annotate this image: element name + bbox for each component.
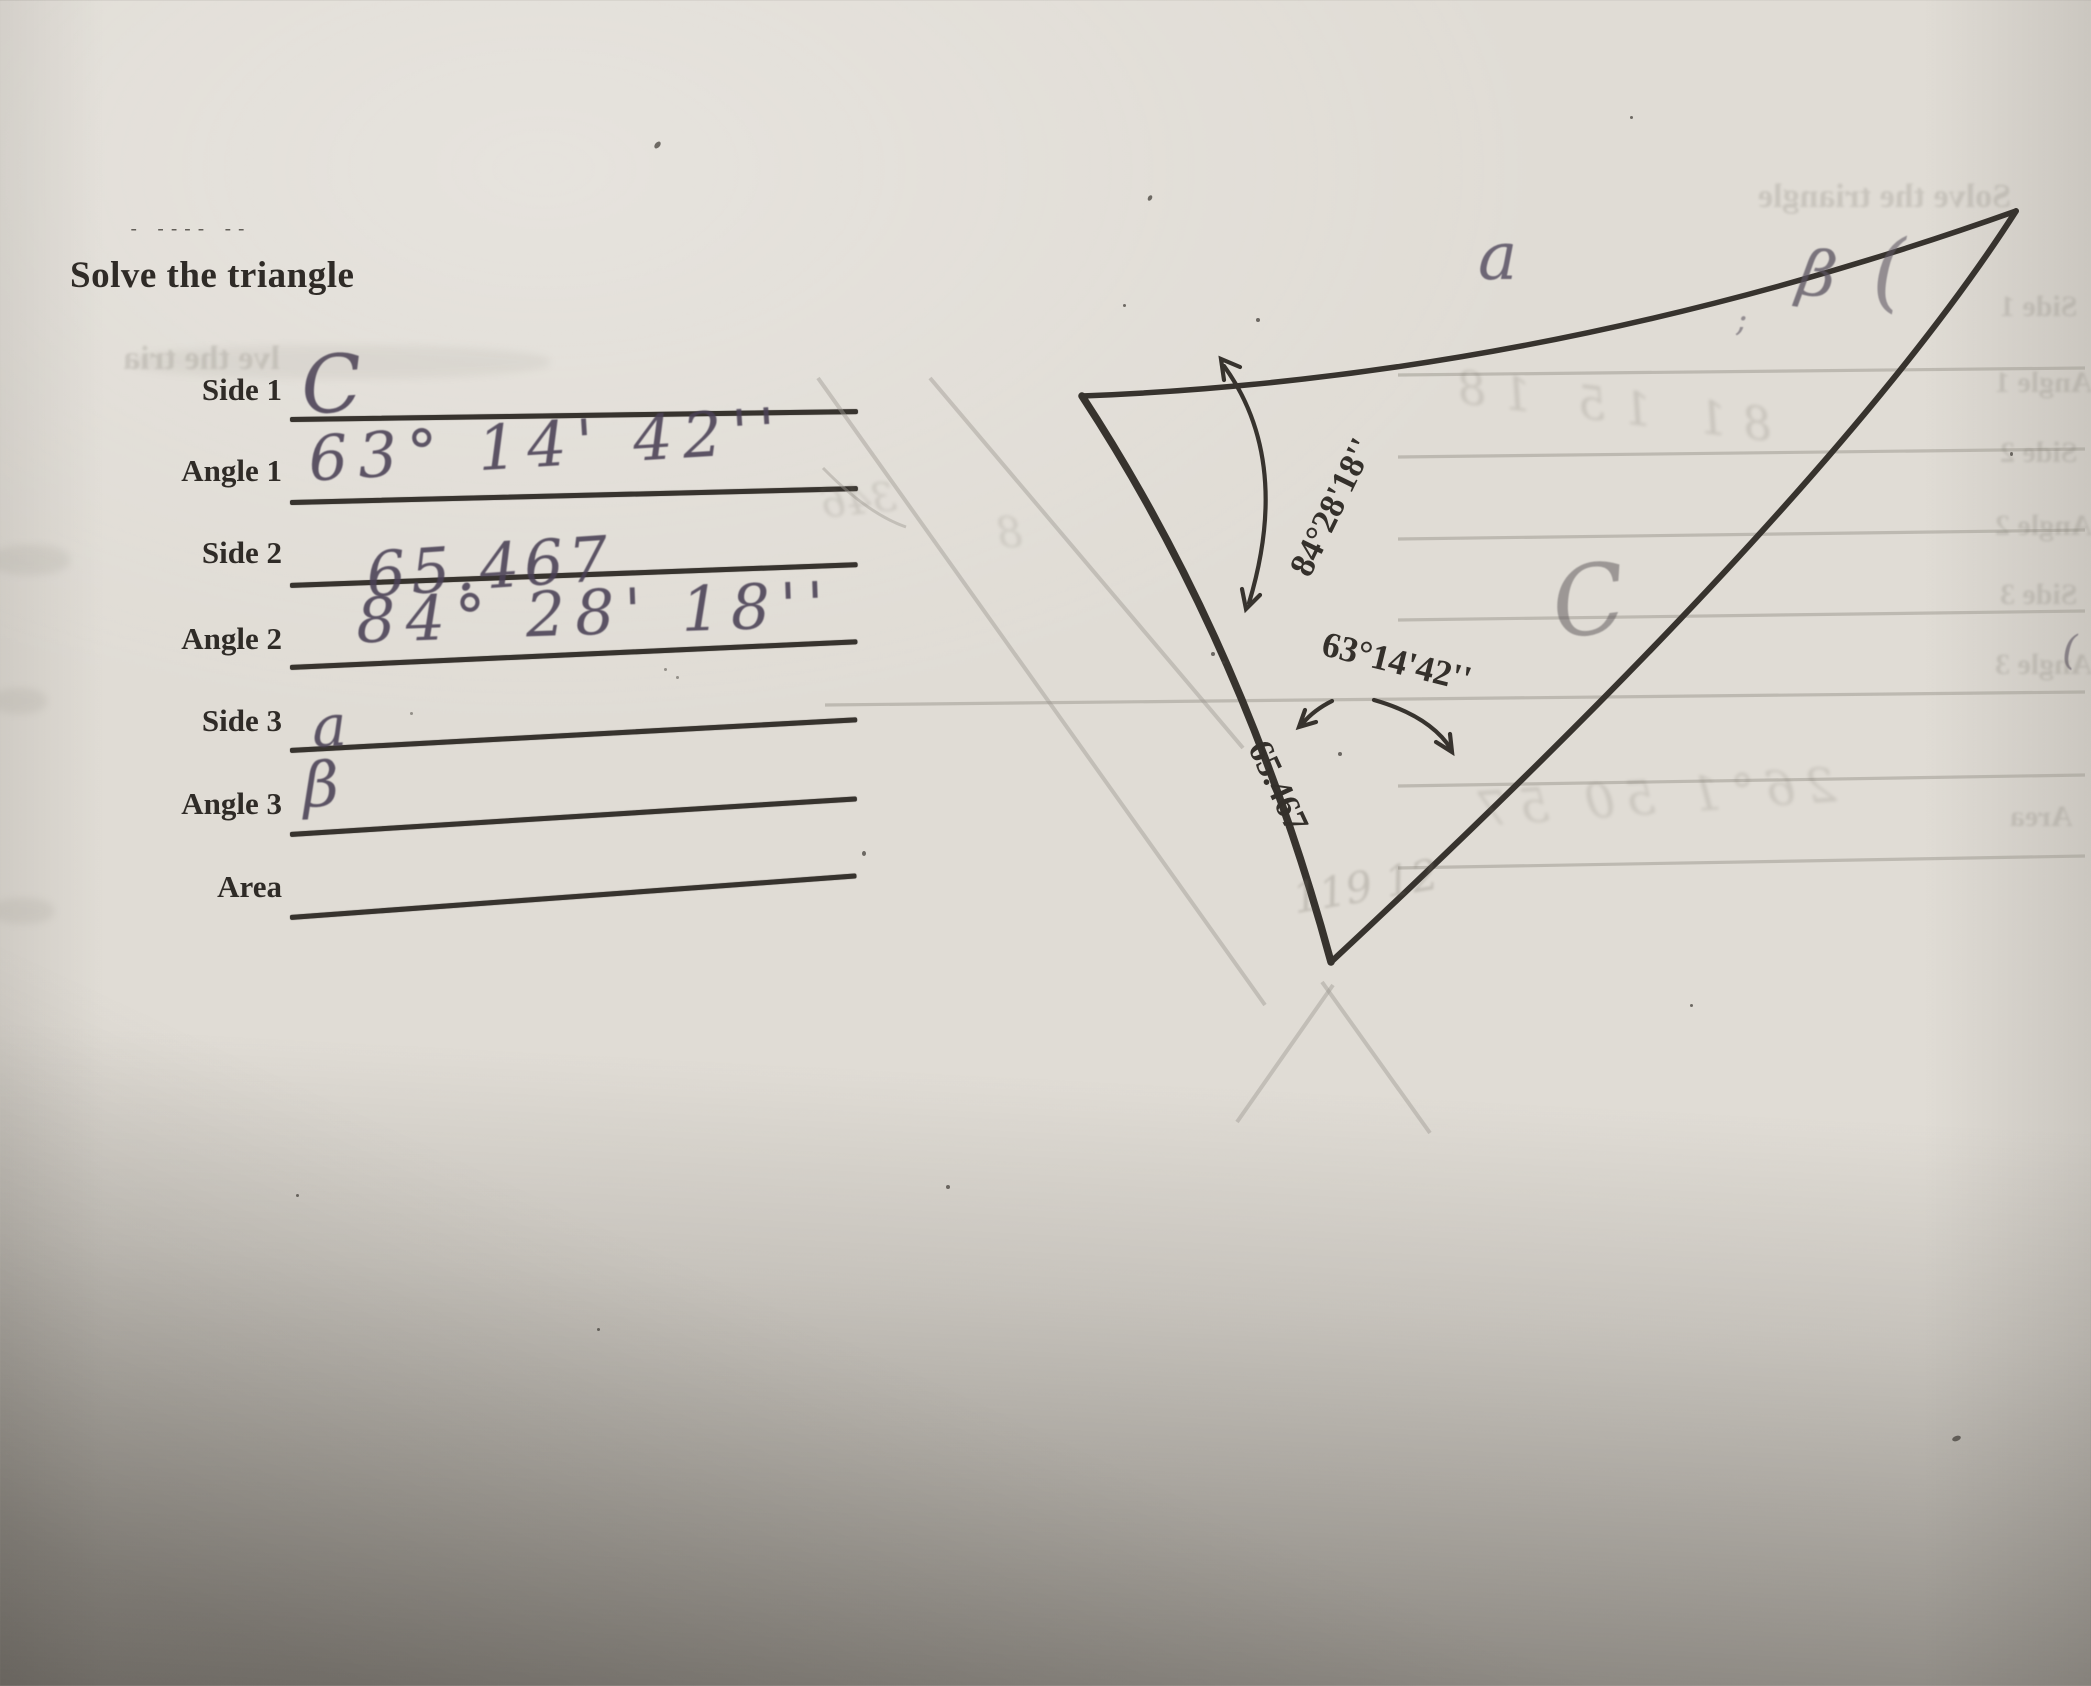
- speck: [1690, 1004, 1693, 1007]
- pencil-tick: ;: [1736, 300, 1747, 340]
- pencil-paren: (: [1872, 222, 1906, 322]
- angle-arc-84: [1221, 359, 1266, 609]
- ghost-label-angle2: Angle 2: [1995, 509, 2091, 543]
- bleed-smudge: [0, 688, 47, 714]
- label-angle-63: 63°14'42'': [1318, 624, 1476, 700]
- speck: [296, 1194, 299, 1197]
- triangle-figure: 84°28'18'' 63°14'42'' 65.467: [0, 0, 2091, 1686]
- label-side-65467: 65.467: [1240, 734, 1316, 838]
- speck: [1630, 116, 1633, 119]
- worksheet-photo: { "page": { "title": "Solve the triangle…: [0, 0, 2091, 1686]
- bleed-smudge: [0, 898, 54, 924]
- ghost-handwriting-digit: 8: [996, 508, 1023, 557]
- side-right: [1331, 211, 2016, 962]
- speck: [1211, 652, 1215, 656]
- ghost-handwriting-left: 346: [818, 474, 899, 528]
- speck: [1338, 752, 1342, 756]
- speck: [1222, 661, 1225, 664]
- pencil-label-a: a: [1478, 218, 1517, 295]
- speck: [946, 1185, 950, 1189]
- bleed-smudge: [130, 345, 550, 379]
- pencil-letter-c: C: [1545, 541, 1632, 661]
- speck: [410, 712, 413, 715]
- ghost-label-side1: Side 1: [2000, 290, 2078, 324]
- speck: [597, 1328, 600, 1331]
- ghost-label-angle1: Angle 1: [1995, 366, 2091, 400]
- speck: [1123, 304, 1126, 307]
- speck: [2010, 452, 2013, 456]
- angle-arc-63: [1299, 700, 1452, 752]
- ghost-label-area: Area: [2010, 800, 2073, 834]
- speck: [862, 851, 866, 856]
- bleed-smudge: [0, 545, 70, 575]
- speck: [1256, 318, 1260, 322]
- ghost-label-angle3: Angle 3: [1995, 648, 2091, 682]
- speck: [664, 668, 667, 671]
- speck: [676, 676, 679, 679]
- label-angle-84: 84°28'18'': [1282, 432, 1382, 582]
- ghost-title-right: Solve the triangle: [1758, 178, 2011, 216]
- ghost-label-side3: Side 3: [2000, 578, 2078, 612]
- ghost-ruled-lines: [825, 368, 2085, 868]
